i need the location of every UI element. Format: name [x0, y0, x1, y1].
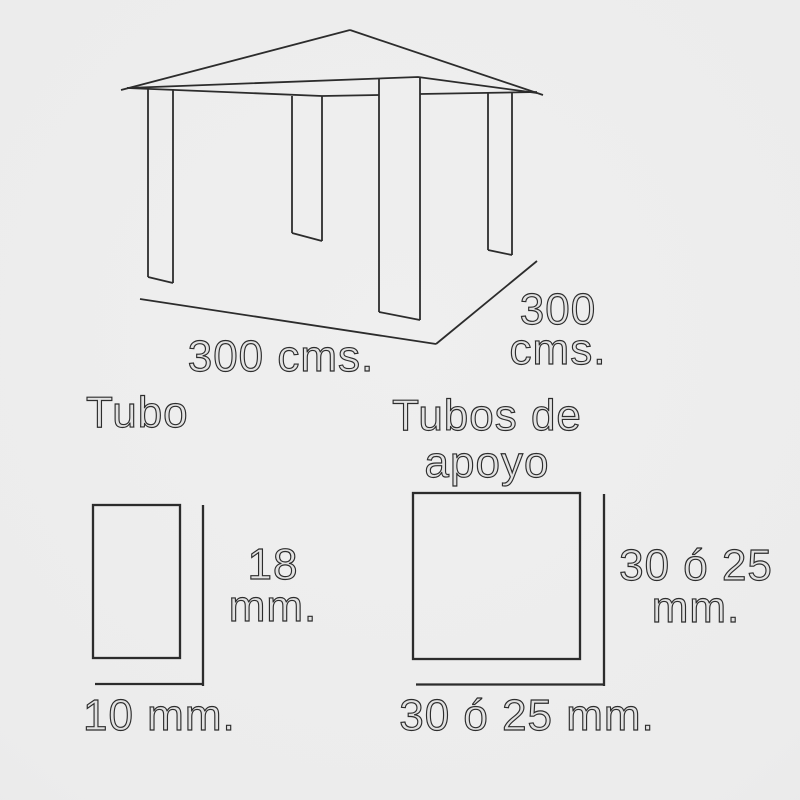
support-tube-section-title: Tubos de apoyo — [387, 392, 587, 486]
gazebo-roof — [121, 30, 543, 96]
support-height-dimension-label: 30 ó 25 mm. — [596, 545, 796, 629]
tube-width-dimension-label: 10 mm. — [83, 695, 236, 737]
gazebo-post-back — [292, 96, 322, 241]
support-width-dimension-label: 30 ó 25 mm. — [377, 695, 677, 737]
support-title-line1: Tubos de — [387, 392, 587, 439]
support-tube-cross-section — [413, 493, 605, 686]
support-tube-square — [413, 493, 580, 659]
gazebo-side-dimension-label: 300 cms. — [478, 290, 638, 370]
gazebo-side-dimension-unit: cms. — [478, 330, 638, 370]
support-title-line2: apoyo — [387, 439, 587, 486]
gazebo-post-right — [488, 92, 512, 255]
tube-height-value: 18 — [193, 544, 353, 586]
tube-section-title: Tubo — [86, 392, 189, 434]
support-height-unit: mm. — [596, 587, 796, 629]
tube-height-unit: mm. — [193, 586, 353, 628]
gazebo-front-dimension-label: 300 cms. — [161, 336, 401, 378]
tube-rectangle — [93, 505, 180, 658]
support-height-value: 30 ó 25 — [596, 545, 796, 587]
catalog-diagram-page: { "meta": { "background_color": "#ececec… — [0, 0, 800, 800]
gazebo-post-front-left — [148, 88, 173, 283]
tube-height-dimension-label: 18 mm. — [193, 544, 353, 628]
gazebo-side-dimension-value: 300 — [478, 290, 638, 330]
gazebo-post-front — [379, 77, 420, 320]
tube-cross-section — [93, 505, 204, 686]
